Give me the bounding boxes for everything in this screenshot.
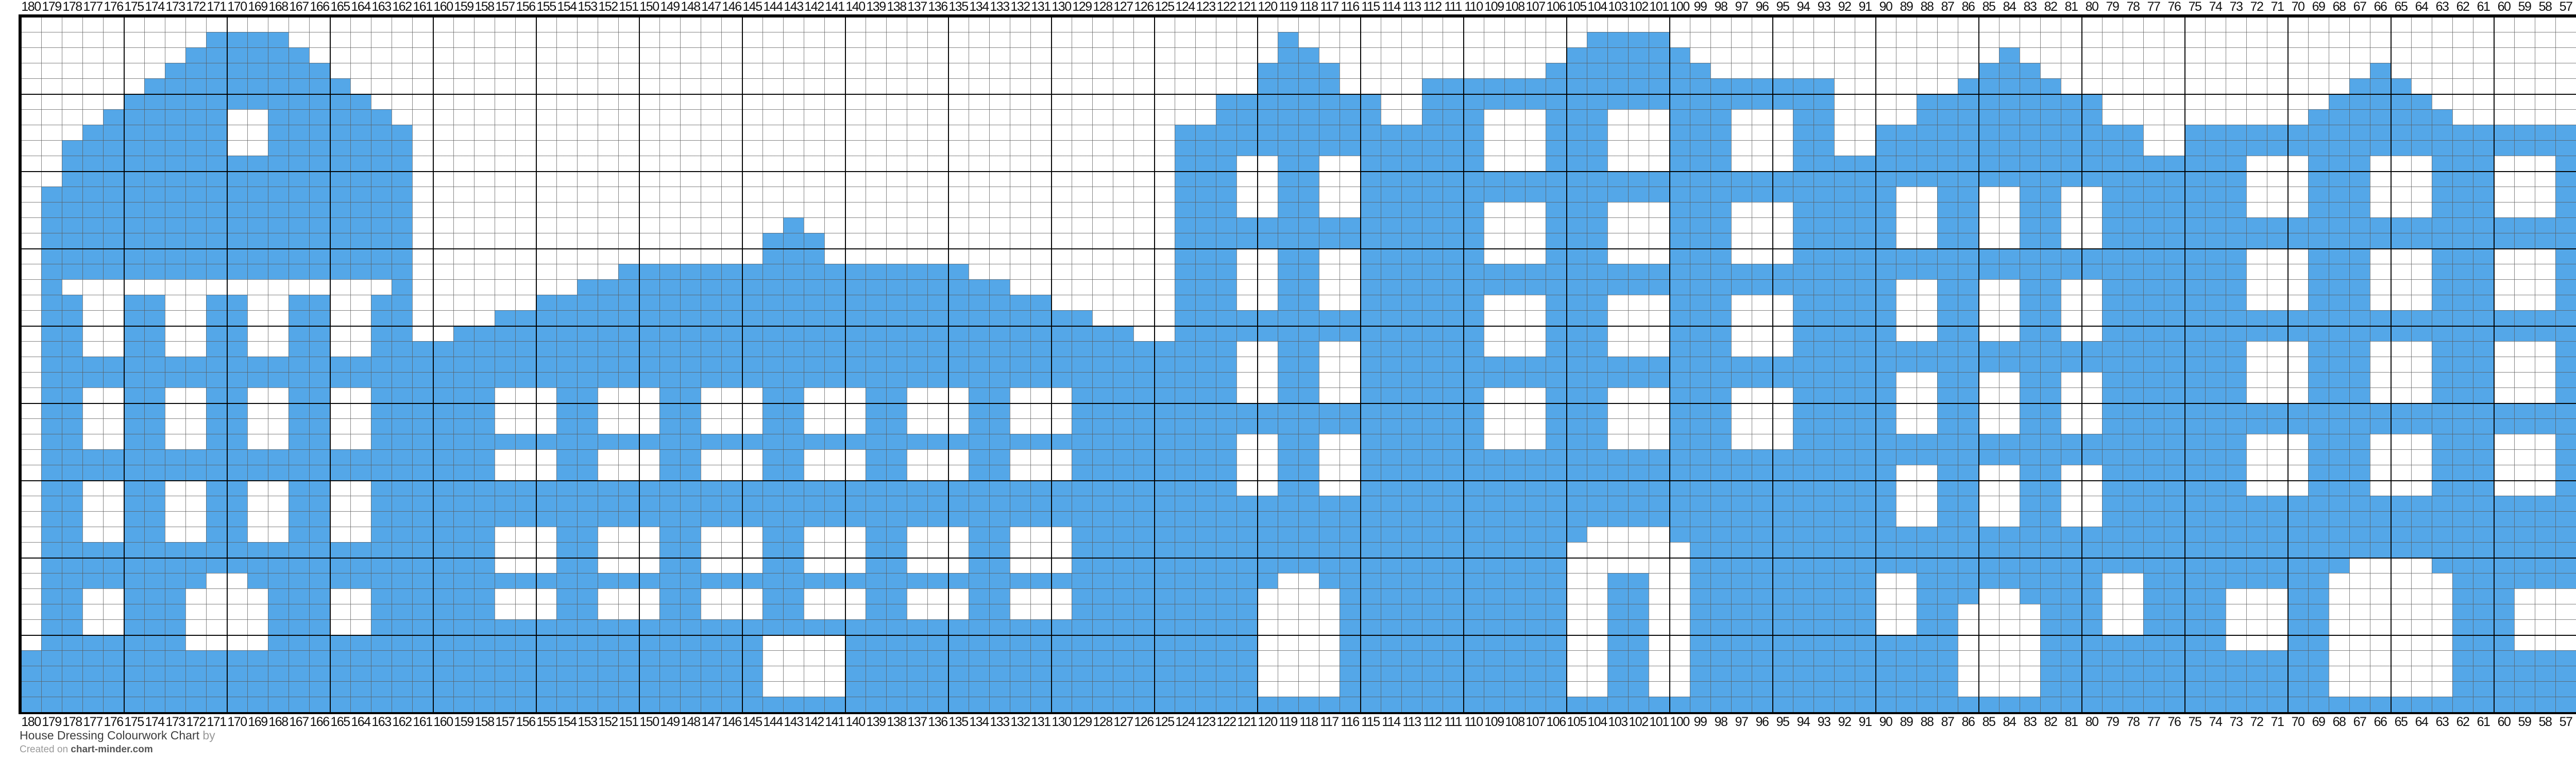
stitch-run-row-7 (659, 604, 701, 619)
stitch-run-row-21 (659, 387, 701, 403)
stitch-run-row-35 (1422, 171, 2246, 187)
stitch-run-row-7 (969, 604, 1010, 619)
stitch-run-row-23 (41, 357, 1236, 372)
column-number: 165 (330, 0, 350, 13)
stitch-run-row-30 (762, 248, 824, 264)
column-number: 174 (144, 715, 165, 729)
column-number: 89 (1896, 0, 1917, 13)
column-number: 99 (1690, 715, 1710, 729)
stitch-run-row-38 (268, 125, 412, 140)
column-number: 137 (907, 0, 927, 13)
column-number: 154 (556, 0, 577, 13)
stitch-run-row-44 (1587, 32, 1669, 47)
stitch-run-row-6 (41, 619, 82, 635)
column-number: 106 (1546, 0, 1566, 13)
column-number: 111 (1443, 0, 1463, 13)
stitch-run-row-8 (556, 588, 598, 604)
colourwork-chart-page: 1801791781771761751741731721711701691681… (0, 0, 2576, 759)
stitch-run-row-17 (762, 449, 804, 465)
stitch-run-row-24 (412, 341, 1236, 357)
stitch-run-row-13 (2102, 511, 2576, 527)
stitch-run-row-22 (1360, 372, 1422, 387)
column-number: 133 (989, 0, 1010, 13)
stitch-run-row-34 (1422, 187, 1896, 202)
stitch-run-row-39 (1669, 109, 1731, 125)
stitch-run-row-16 (969, 465, 1010, 480)
stitch-run-row-30 (1546, 248, 1607, 264)
stitch-run-row-21 (2555, 387, 2576, 403)
stitch-run-row-31 (2102, 233, 2576, 248)
stitch-run-row-17 (2308, 449, 2370, 465)
stitch-run-row-19 (2020, 418, 2061, 434)
stitch-run-row-34 (1278, 187, 1319, 202)
column-number: 108 (1504, 715, 1525, 729)
stitch-run-row-21 (124, 387, 165, 403)
stitch-run-row-36 (1669, 156, 1731, 171)
stitch-run-row-18 (1278, 434, 1319, 449)
stitch-run-row-6 (268, 619, 330, 635)
stitch-run-row-38 (1175, 125, 1484, 140)
column-number: 93 (1814, 715, 1834, 729)
column-number: 81 (2061, 715, 2081, 729)
stitch-run-row-28 (577, 279, 1010, 295)
column-number: 88 (1917, 0, 1937, 13)
stitch-run-row-27 (2020, 295, 2061, 310)
stitch-run-row-4 (2452, 650, 2576, 666)
stitch-run-row-21 (1546, 387, 1607, 403)
column-number: 150 (639, 0, 659, 13)
stitch-run-row-26 (289, 310, 330, 326)
stitch-run-row-34 (2102, 187, 2246, 202)
stitch-run-row-27 (1360, 295, 1484, 310)
stitch-run-row-8 (124, 588, 185, 604)
stitch-run-row-14 (1937, 496, 1978, 511)
stitch-run-row-12 (1072, 527, 1587, 542)
stitch-run-row-27 (1669, 295, 1731, 310)
stitch-run-row-13 (124, 511, 165, 527)
stitch-run-row-26 (124, 310, 165, 326)
column-number: 60 (2494, 715, 2514, 729)
stitch-run-row-33 (1175, 202, 1236, 217)
stitch-run-row-24 (41, 341, 82, 357)
stitch-run-row-33 (1278, 202, 1319, 217)
stitch-run-row-6 (371, 619, 1257, 635)
stitch-run-row-17 (556, 449, 598, 465)
stitch-run-row-8 (2452, 588, 2514, 604)
stitch-run-row-9 (247, 573, 1278, 588)
column-number: 101 (1649, 0, 1669, 13)
stitch-run-row-27 (1175, 295, 1236, 310)
stitch-run-row-5 (1690, 635, 1958, 650)
column-number: 67 (2349, 0, 2370, 13)
column-number: 146 (721, 0, 742, 13)
column-number: 117 (1319, 0, 1340, 13)
stitch-run-row-33 (2432, 202, 2494, 217)
stitch-run-row-15 (2020, 480, 2061, 496)
stitch-run-row-39 (2308, 109, 2452, 125)
column-number: 63 (2432, 0, 2452, 13)
stitch-run-row-11 (556, 542, 598, 558)
stitch-run-row-25 (371, 326, 412, 341)
column-number: 157 (495, 715, 515, 729)
stitch-run-row-15 (2102, 480, 2246, 496)
stitch-run-row-13 (2020, 511, 2061, 527)
stitch-run-row-18 (206, 434, 247, 449)
stitch-run-row-18 (2308, 434, 2370, 449)
stitch-run-row-20 (206, 403, 247, 418)
stitch-run-row-26 (2102, 310, 2576, 326)
column-number: 87 (1937, 0, 1958, 13)
stitch-run-row-25 (206, 326, 247, 341)
stitch-run-row-34 (41, 187, 412, 202)
column-number: 155 (536, 0, 556, 13)
stitch-run-row-12 (969, 527, 1010, 542)
stitch-run-row-18 (1669, 434, 1731, 449)
stitch-run-row-33 (2308, 202, 2370, 217)
column-number: 80 (2081, 0, 2102, 13)
stitch-run-row-8 (1072, 588, 1257, 604)
column-number: 93 (1814, 0, 1834, 13)
stitch-run-row-36 (2555, 156, 2576, 171)
stitch-run-row-26 (1175, 310, 1484, 326)
column-number: 129 (1072, 0, 1092, 13)
column-number: 89 (1896, 715, 1917, 729)
stitch-run-row-16 (2308, 465, 2370, 480)
stitch-run-row-41 (1257, 78, 1340, 94)
column-number: 74 (2205, 715, 2226, 729)
stitch-run-row-26 (1546, 310, 1607, 326)
stitch-run-row-39 (268, 109, 392, 125)
stitch-run-row-6 (124, 619, 185, 635)
stitch-run-row-11 (1072, 542, 1566, 558)
column-number: 162 (392, 0, 412, 13)
stitch-run-row-25 (453, 326, 1133, 341)
column-number: 164 (350, 0, 371, 13)
stitch-run-row-7 (1690, 604, 1875, 619)
column-number: 140 (845, 715, 866, 729)
stitch-run-row-31 (2020, 233, 2061, 248)
stitch-run-row-4 (1690, 650, 1958, 666)
stitch-run-row-19 (1072, 418, 1484, 434)
column-number: 131 (1030, 0, 1051, 13)
stitch-run-row-34 (1937, 187, 1978, 202)
stitch-run-row-8 (2020, 588, 2102, 604)
column-number: 119 (1278, 0, 1298, 13)
stitch-run-row-8 (41, 588, 82, 604)
column-number: 74 (2205, 0, 2226, 13)
column-number: 136 (927, 0, 948, 13)
stitch-run-row-23 (2555, 357, 2576, 372)
column-number: 116 (1340, 715, 1360, 729)
stitch-run-row-5 (845, 635, 1257, 650)
stitch-run-row-11 (762, 542, 804, 558)
column-number: 69 (2308, 715, 2329, 729)
column-number: 66 (2370, 715, 2391, 729)
stitch-run-row-10 (659, 558, 701, 573)
stitch-run-row-27 (124, 295, 165, 310)
stitch-run-row-34 (1360, 187, 1422, 202)
stitch-run-row-15 (1278, 480, 1319, 496)
stitch-run-row-12 (556, 527, 598, 542)
column-number: 120 (1257, 0, 1278, 13)
stitch-run-row-10 (969, 558, 1010, 573)
stitch-run-row-22 (1937, 372, 1978, 387)
stitch-run-row-32 (41, 217, 412, 233)
stitch-run-row-33 (1793, 202, 1896, 217)
stitch-run-row-35 (1278, 171, 1319, 187)
stitch-run-row-27 (1278, 295, 1319, 310)
stitch-run-row-20 (556, 403, 598, 418)
stitch-run-row-2 (1607, 681, 1649, 697)
column-number: 152 (598, 715, 618, 729)
stitch-run-row-10 (556, 558, 598, 573)
column-number: 95 (1772, 715, 1793, 729)
column-number: 170 (227, 715, 247, 729)
stitch-run-row-24 (1278, 341, 1319, 357)
column-number: 100 (1669, 715, 1690, 729)
stitch-run-row-14 (41, 496, 82, 511)
stitch-run-row-25 (1937, 326, 1978, 341)
stitch-run-row-15 (2555, 480, 2576, 496)
stitch-run-row-30 (41, 248, 412, 264)
stitch-run-row-7 (2287, 604, 2329, 619)
stitch-run-row-21 (1278, 387, 1319, 403)
stitch-run-row-24 (1546, 341, 1607, 357)
stitch-run-row-19 (556, 418, 598, 434)
stitch-run-row-8 (866, 588, 907, 604)
stitch-run-row-27 (2308, 295, 2370, 310)
stitch-run-row-33 (1937, 202, 1978, 217)
stitch-run-row-12 (289, 527, 330, 542)
stitch-run-row-19 (762, 418, 804, 434)
column-number: 174 (144, 0, 165, 13)
stitch-run-row-11 (1690, 542, 2576, 558)
column-number: 80 (2081, 715, 2102, 729)
column-number: 139 (866, 0, 886, 13)
chart-title-line: House Dressing Colourwork Chart by (20, 729, 215, 743)
stitch-run-row-39 (1546, 109, 1607, 125)
column-number: 167 (289, 715, 309, 729)
stitch-run-row-37 (1875, 140, 2143, 156)
stitch-run-row-9 (2143, 573, 2329, 588)
stitch-run-row-37 (62, 140, 227, 156)
stitch-run-row-38 (1875, 125, 2143, 140)
stitch-run-row-38 (2184, 125, 2576, 140)
column-number: 139 (866, 715, 886, 729)
stitch-run-row-18 (1793, 434, 2246, 449)
column-number: 59 (2514, 715, 2535, 729)
stitch-run-row-15 (1937, 480, 1978, 496)
stitch-run-row-30 (1793, 248, 2246, 264)
column-numbers-bottom: 1801791781771761751741731721711701691681… (21, 715, 2576, 729)
stitch-run-row-27 (1546, 295, 1607, 310)
stitch-run-row-20 (2102, 403, 2576, 418)
stitch-run-row-33 (41, 202, 412, 217)
stitch-run-row-8 (969, 588, 1010, 604)
stitch-run-row-43 (1566, 47, 1690, 63)
stitch-run-row-38 (1669, 125, 1731, 140)
column-number: 151 (618, 715, 639, 729)
column-number: 158 (474, 715, 495, 729)
column-number: 168 (268, 0, 289, 13)
stitch-run-row-12 (866, 527, 907, 542)
column-number: 166 (309, 0, 330, 13)
stitch-run-row-24 (1793, 341, 2246, 357)
column-number: 160 (433, 0, 453, 13)
stitch-run-row-27 (536, 295, 1051, 310)
stitch-run-row-15 (2432, 480, 2494, 496)
column-number: 86 (1958, 0, 1978, 13)
stitch-run-row-33 (2020, 202, 2061, 217)
stitch-run-row-19 (2102, 418, 2576, 434)
column-number: 147 (701, 715, 721, 729)
column-number: 109 (1484, 715, 1504, 729)
stitch-run-row-4 (21, 650, 762, 666)
stitch-run-row-39 (1793, 109, 1834, 125)
stitch-run-row-12 (41, 527, 82, 542)
stitch-run-row-3 (1607, 666, 1649, 681)
stitch-run-row-5 (1607, 635, 1649, 650)
column-number: 125 (1154, 715, 1175, 729)
column-number: 145 (742, 715, 762, 729)
column-number: 94 (1793, 0, 1814, 13)
column-number: 112 (1422, 715, 1443, 729)
stitch-run-row-12 (124, 527, 165, 542)
column-number: 172 (185, 715, 206, 729)
stitch-run-row-43 (1999, 47, 2020, 63)
stitch-run-row-21 (2102, 387, 2246, 403)
stitch-run-row-36 (2308, 156, 2370, 171)
stitch-run-row-20 (124, 403, 165, 418)
stitch-run-row-12 (1669, 527, 2576, 542)
chart-credit-line: Created on chart-minder.com (20, 744, 153, 755)
stitch-run-row-29 (41, 264, 412, 279)
column-number: 143 (783, 0, 804, 13)
column-number: 113 (1401, 0, 1422, 13)
column-number: 151 (618, 0, 639, 13)
column-number: 121 (1236, 0, 1257, 13)
stitch-run-row-39 (1216, 109, 1381, 125)
stitch-run-row-44 (206, 32, 289, 47)
stitch-run-row-35 (2555, 171, 2576, 187)
stitch-run-row-16 (2555, 465, 2576, 480)
stitch-run-row-21 (2432, 387, 2494, 403)
column-number: 176 (103, 0, 124, 13)
stitch-run-row-39 (1917, 109, 2102, 125)
column-number: 161 (412, 715, 433, 729)
stitch-run-row-25 (1793, 326, 1896, 341)
stitch-run-row-31 (41, 233, 412, 248)
stitch-run-row-34 (2020, 187, 2061, 202)
column-number: 91 (1855, 0, 1875, 13)
stitch-run-row-16 (2432, 465, 2494, 480)
column-number: 57 (2555, 715, 2576, 729)
stitch-run-row-13 (206, 511, 247, 527)
column-number: 57 (2555, 0, 2576, 13)
stitch-run-row-32 (2020, 217, 2061, 233)
stitch-run-row-15 (1360, 480, 1896, 496)
stitch-run-row-3 (2040, 666, 2329, 681)
stitch-run-row-26 (2020, 310, 2061, 326)
column-number: 161 (412, 0, 433, 13)
stitch-run-row-10 (1690, 558, 2349, 573)
stitch-run-row-17 (659, 449, 701, 465)
stitch-run-row-20 (2020, 403, 2061, 418)
column-number: 157 (495, 0, 515, 13)
stitch-run-row-12 (762, 527, 804, 542)
column-number: 105 (1566, 0, 1587, 13)
stitch-run-row-19 (1793, 418, 1896, 434)
stitch-run-row-40 (2329, 94, 2432, 109)
stitch-run-row-15 (371, 480, 1236, 496)
column-number: 72 (2246, 0, 2267, 13)
stitch-run-row-18 (289, 434, 330, 449)
column-number: 69 (2308, 0, 2329, 13)
stitch-run-row-28 (1175, 279, 1236, 295)
column-number: 178 (62, 715, 82, 729)
stitch-run-row-2 (1340, 681, 1566, 697)
column-number: 68 (2329, 715, 2349, 729)
column-number: 180 (21, 715, 41, 729)
stitch-run-row-36 (1175, 156, 1236, 171)
stitch-run-row-42 (1978, 63, 2040, 78)
column-number: 168 (268, 715, 289, 729)
stitch-run-row-22 (2102, 372, 2246, 387)
stitch-run-row-23 (2432, 357, 2494, 372)
stitch-run-row-22 (2432, 372, 2494, 387)
stitch-run-row-3 (2452, 666, 2576, 681)
stitch-run-row-36 (1360, 156, 1484, 171)
stitch-run-row-16 (2102, 465, 2246, 480)
stitch-run-row-3 (1340, 666, 1566, 681)
column-numbers-top: 1801791781771761751741731721711701691681… (21, 0, 2576, 13)
column-number: 122 (1216, 0, 1236, 13)
column-number: 129 (1072, 715, 1092, 729)
column-number: 85 (1978, 715, 1999, 729)
stitch-run-row-20 (41, 403, 82, 418)
column-number: 67 (2349, 715, 2370, 729)
stitch-run-row-24 (2432, 341, 2494, 357)
stitch-run-row-11 (41, 542, 495, 558)
column-number: 120 (1257, 715, 1278, 729)
stitch-run-row-27 (289, 295, 330, 310)
column-number: 124 (1175, 0, 1195, 13)
stitch-run-row-18 (124, 434, 165, 449)
column-number: 108 (1504, 0, 1525, 13)
column-number: 170 (227, 0, 247, 13)
chart-minder-site: chart-minder.com (71, 744, 152, 755)
column-number: 166 (309, 715, 330, 729)
column-number: 163 (371, 0, 392, 13)
stitch-run-row-5 (268, 635, 762, 650)
pattern-grid (19, 14, 2576, 714)
stitch-run-row-2 (845, 681, 1257, 697)
chart-by-label: by (199, 729, 215, 742)
stitch-run-row-20 (371, 403, 495, 418)
column-number: 156 (515, 715, 536, 729)
stitch-run-row-19 (371, 418, 495, 434)
column-number: 115 (1360, 0, 1381, 13)
stitch-run-row-5 (1340, 635, 1566, 650)
column-number: 116 (1340, 0, 1360, 13)
column-number: 118 (1298, 0, 1319, 13)
column-number: 94 (1793, 715, 1814, 729)
stitch-run-row-14 (289, 496, 330, 511)
stitch-run-row-32 (1793, 217, 1896, 233)
column-number: 153 (577, 0, 598, 13)
stitch-run-row-20 (1072, 403, 1484, 418)
stitch-run-row-13 (1937, 511, 1978, 527)
